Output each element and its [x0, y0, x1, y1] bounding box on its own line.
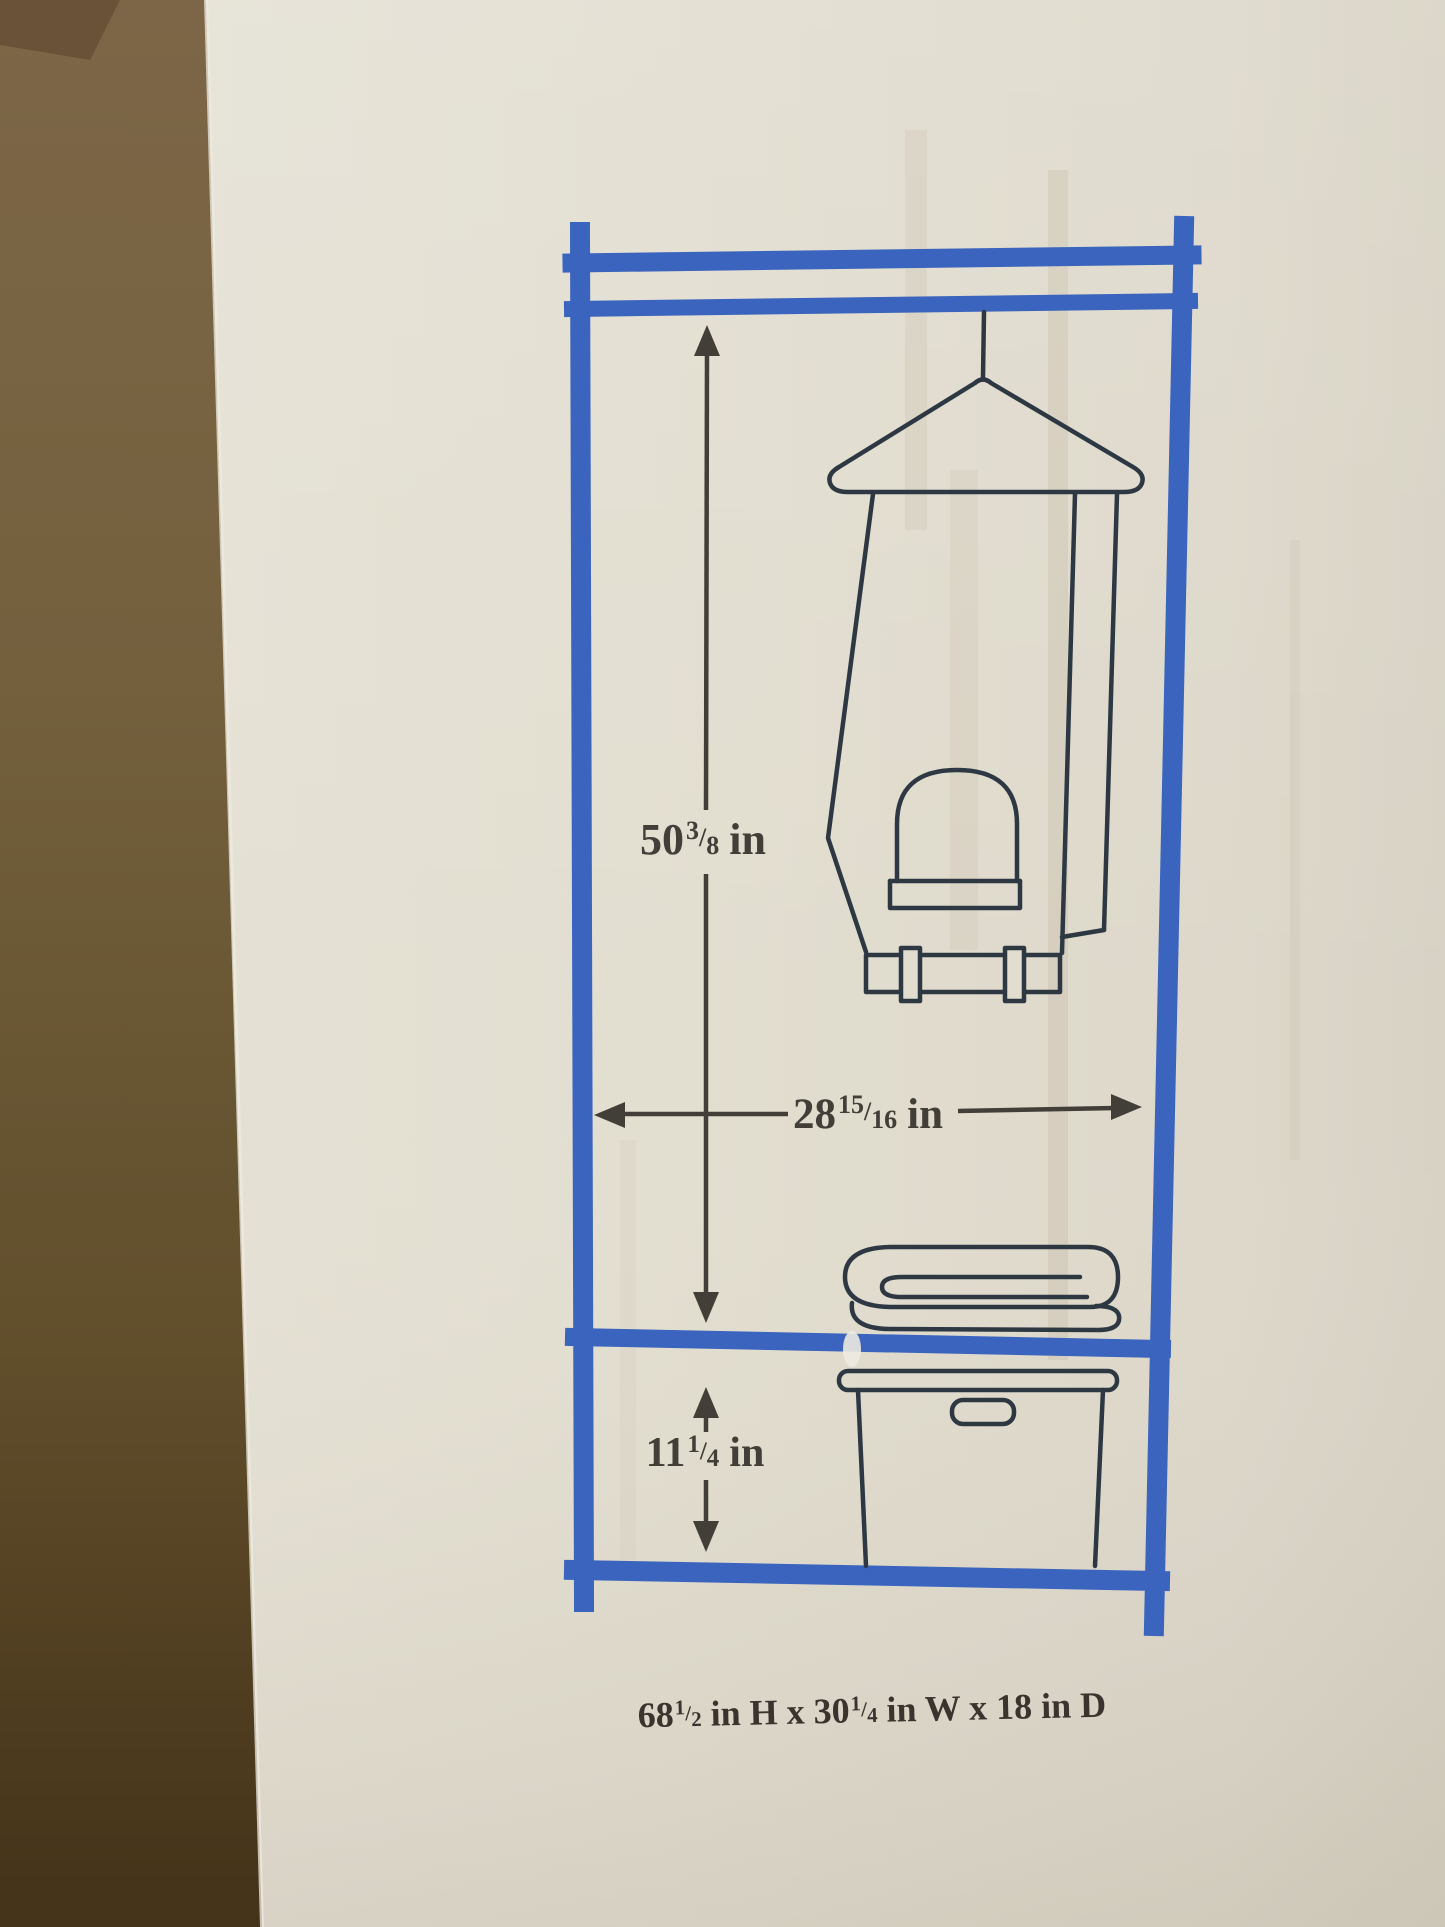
photo-vignette: [0, 0, 1445, 1927]
diagram-canvas: 503/8in 2815/16in 111/4in 681/2in H x301…: [0, 0, 1445, 1927]
box-photo: 503/8in 2815/16in 111/4in 681/2in H x301…: [0, 0, 1445, 1927]
